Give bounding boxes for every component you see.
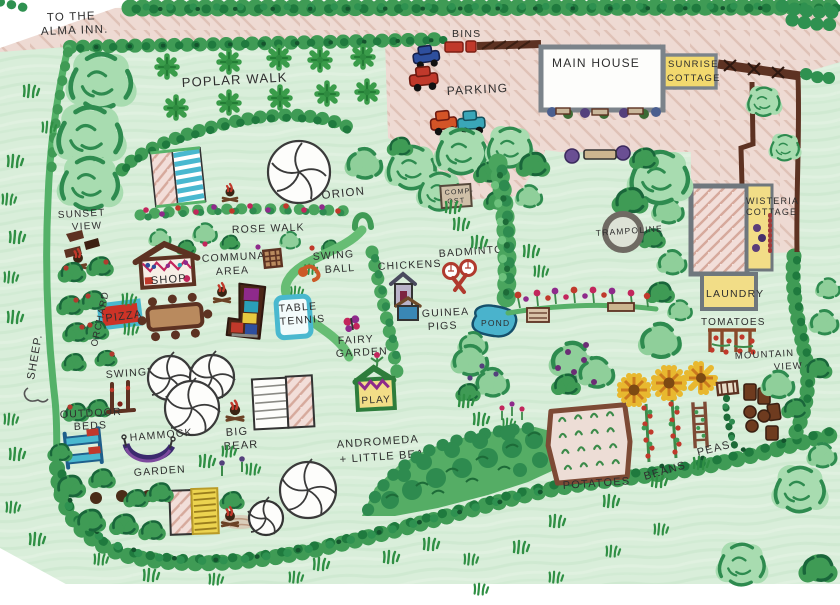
- svg-text:VIEW: VIEW: [72, 220, 103, 233]
- svg-text:BEAR: BEAR: [223, 439, 259, 453]
- svg-text:BALL: BALL: [324, 262, 355, 276]
- svg-text:COTTAGE: COTTAGE: [667, 73, 721, 84]
- svg-text:BINS: BINS: [452, 28, 481, 40]
- svg-text:TOMATOES: TOMATOES: [701, 317, 766, 328]
- svg-text:AREA: AREA: [216, 264, 250, 278]
- svg-text:POND: POND: [481, 318, 510, 328]
- svg-text:LAUNDRY: LAUNDRY: [706, 288, 764, 300]
- svg-text:TO THE: TO THE: [47, 10, 96, 24]
- svg-text:MAIN HOUSE: MAIN HOUSE: [552, 56, 640, 70]
- svg-text:ALMA INN.: ALMA INN.: [41, 24, 109, 38]
- svg-text:WISTERIA: WISTERIA: [746, 196, 799, 206]
- svg-text:SUNRISE: SUNRISE: [668, 59, 719, 70]
- svg-text:PIGS: PIGS: [428, 319, 458, 333]
- svg-text:PLAY: PLAY: [361, 394, 391, 407]
- svg-text:FAIRY: FAIRY: [338, 333, 375, 347]
- svg-text:SHOP: SHOP: [150, 273, 187, 287]
- svg-text:BIG: BIG: [225, 425, 248, 439]
- svg-text:GUINEA: GUINEA: [422, 306, 470, 320]
